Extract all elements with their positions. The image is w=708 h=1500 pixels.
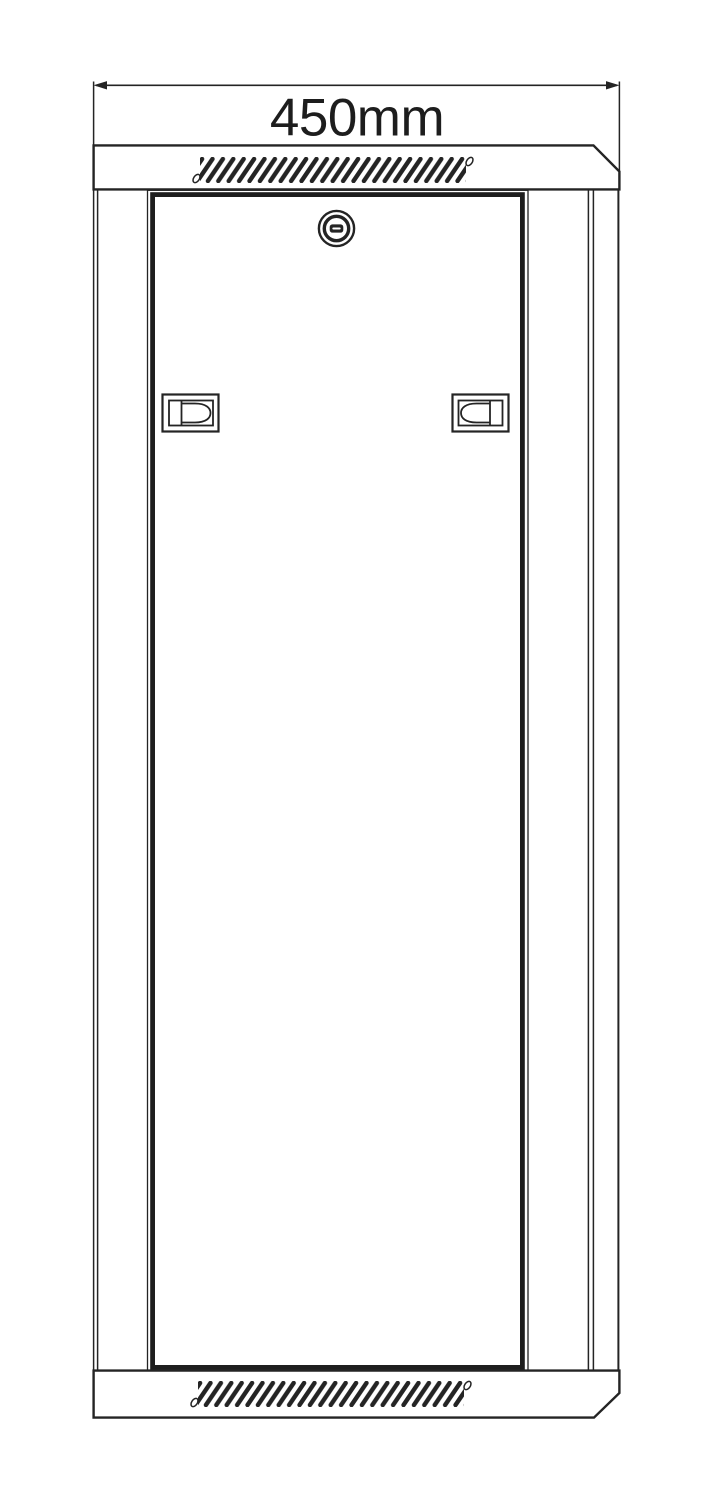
bottom-panel <box>94 1371 620 1418</box>
right-side-panel <box>588 189 618 1370</box>
door-latch-left <box>163 395 219 432</box>
door-panel <box>153 195 523 1368</box>
cabinet-front-drawing: 450mm <box>0 0 708 1500</box>
dimension-arrow-right <box>606 81 620 89</box>
dimension-arrow-left <box>94 81 108 89</box>
left-side-panel <box>94 189 98 1370</box>
dimension-width-label: 450mm <box>270 89 444 148</box>
top-vent-grille <box>192 156 475 184</box>
door-latch-right <box>453 395 509 432</box>
top-panel <box>94 145 620 189</box>
drawing-canvas: 450mm <box>0 0 708 1500</box>
lock-keyway-slot <box>332 228 340 230</box>
cam-lock-icon <box>319 211 354 246</box>
bottom-vent-grille <box>190 1380 473 1408</box>
